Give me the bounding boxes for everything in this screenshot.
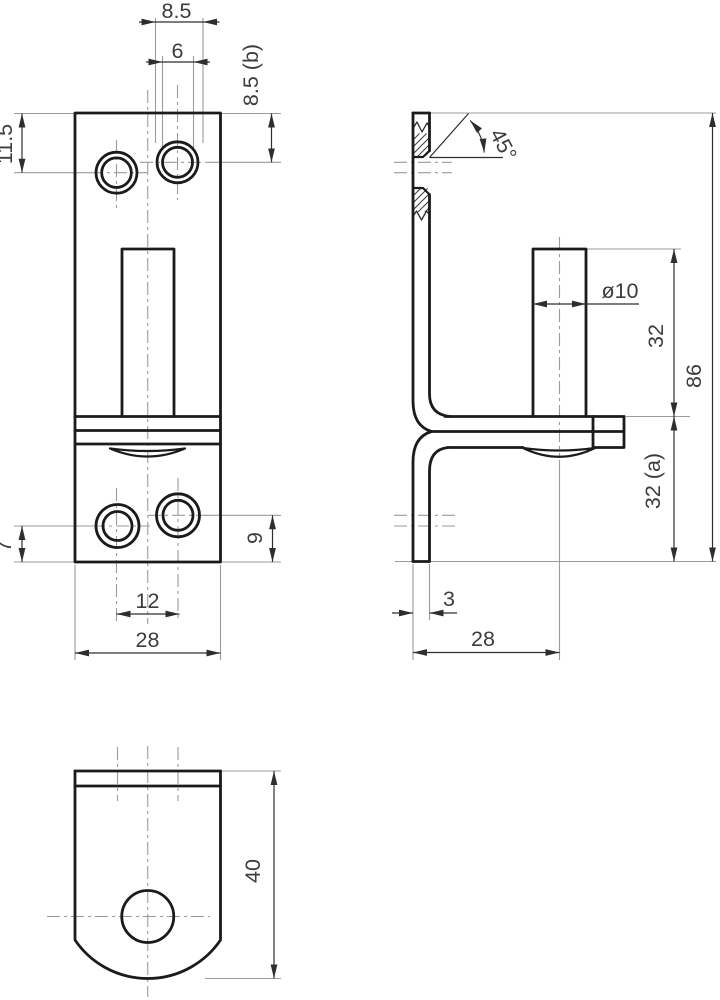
dim-bottom-right-offset: 9 [243, 532, 267, 544]
side-dimensions [392, 113, 713, 653]
front-view: 8.5 6 8.5 (b) 11.5 7 9 12 28 [0, 0, 281, 660]
side-centerlines [394, 162, 560, 526]
dim-bottom-left-offset: 7 [0, 540, 16, 552]
bottom-view: 40 [47, 746, 281, 997]
dim-hole-spacing: 12 [136, 589, 160, 613]
section-hatch [412, 122, 431, 220]
side-part-outline [413, 113, 624, 562]
dim-front-width: 28 [136, 628, 160, 652]
dim-hole-dia: 6 [172, 39, 184, 63]
dim-upper-height: 32 [644, 324, 668, 348]
dim-lower-height: 32 (a) [641, 453, 665, 509]
drawing-canvas: 8.5 6 8.5 (b) 11.5 7 9 12 28 [0, 0, 720, 1000]
dim-countersink-dia: 8.5 [162, 0, 192, 23]
dim-flange-length: 40 [241, 859, 265, 883]
dim-thickness: 3 [443, 587, 455, 611]
front-centerlines [90, 85, 206, 624]
bottom-centerlines [47, 746, 210, 997]
side-view: 45° ø10 32 86 32 (a) 3 28 [392, 113, 716, 660]
technical-drawing: 8.5 6 8.5 (b) 11.5 7 9 12 28 [0, 0, 720, 1000]
dim-top-right-offset: 8.5 (b) [239, 44, 263, 106]
dim-pin-dia: ø10 [601, 279, 638, 303]
dim-total-height: 86 [682, 364, 706, 388]
side-extension-lines [395, 113, 716, 660]
break-line-lower [412, 211, 431, 220]
dim-top-left-offset: 11.5 [0, 124, 17, 164]
dim-pin-offset: 28 [471, 627, 495, 651]
break-line-upper [412, 122, 431, 132]
dim-chamfer-angle: 45° [485, 125, 521, 165]
